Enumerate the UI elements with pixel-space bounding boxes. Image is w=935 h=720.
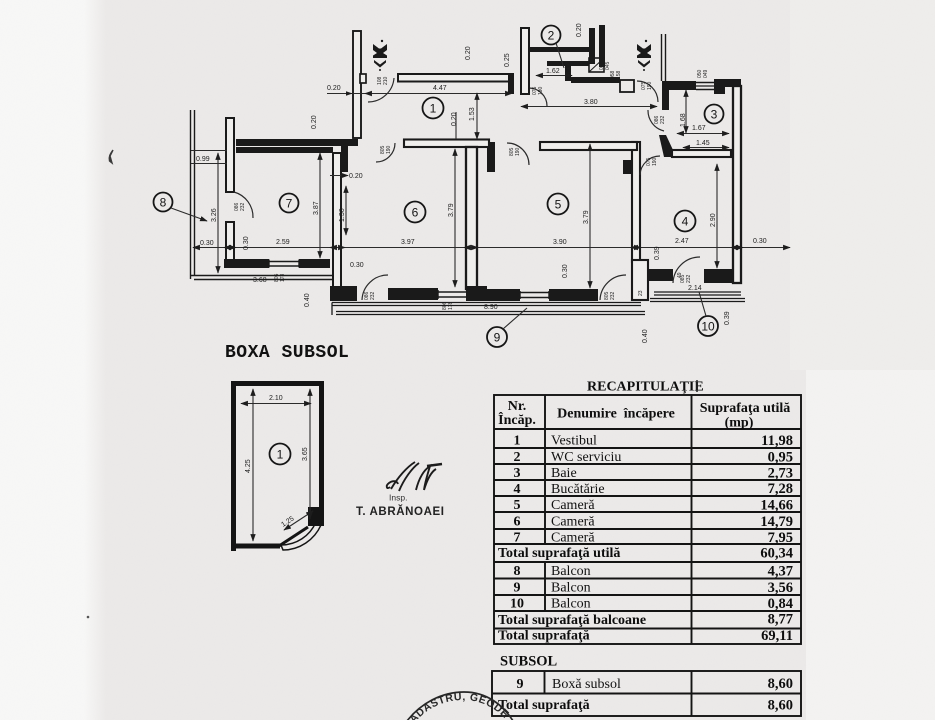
svg-text:7: 7 [514, 531, 521, 546]
svg-text:0.20: 0.20 [465, 46, 472, 60]
svg-text:190: 190 [386, 145, 392, 154]
svg-text:T. ABRĂNOAEI: T. ABRĂNOAEI [356, 505, 445, 518]
svg-text:Denumire încăpere: Denumire încăpere [557, 407, 675, 422]
svg-text:4,37: 4,37 [768, 564, 793, 580]
svg-text:Nr.: Nr. [508, 399, 527, 414]
svg-text:Baie: Baie [551, 466, 577, 481]
svg-text:232: 232 [240, 202, 246, 211]
svg-text:6: 6 [514, 515, 521, 530]
svg-text:0.99: 0.99 [196, 156, 210, 163]
svg-text:1.69: 1.69 [566, 61, 573, 75]
svg-text:0.39: 0.39 [654, 246, 661, 260]
svg-text:3.90: 3.90 [553, 239, 567, 246]
svg-text:190: 190 [538, 86, 544, 95]
svg-text:9: 9 [517, 677, 524, 692]
svg-text:2.90: 2.90 [710, 213, 717, 227]
svg-text:7: 7 [286, 197, 293, 211]
svg-text:5: 5 [514, 498, 521, 513]
svg-text:0.20: 0.20 [576, 23, 583, 37]
svg-text:0.20: 0.20 [327, 85, 341, 92]
svg-text:232: 232 [610, 291, 616, 300]
svg-text:7,28: 7,28 [768, 481, 793, 497]
svg-text:190: 190 [647, 81, 653, 90]
svg-text:2: 2 [514, 450, 521, 465]
svg-text:Insp.: Insp. [389, 493, 407, 503]
svg-text:232: 232 [370, 291, 376, 300]
svg-text:Bucătărie: Bucătărie [551, 482, 605, 497]
svg-text:2: 2 [548, 29, 555, 43]
svg-text:WC serviciu: WC serviciu [551, 450, 621, 465]
svg-text:5: 5 [555, 198, 562, 212]
svg-text:3,56: 3,56 [768, 580, 793, 596]
svg-text:4: 4 [682, 215, 689, 229]
svg-text:0.25: 0.25 [504, 53, 511, 67]
svg-text:0.30: 0.30 [753, 238, 767, 245]
svg-text:8,60: 8,60 [768, 676, 793, 692]
svg-text:60,34: 60,34 [760, 546, 793, 562]
svg-text:1.36: 1.36 [339, 208, 346, 222]
svg-text:10: 10 [701, 320, 715, 334]
svg-text:11,98: 11,98 [761, 433, 793, 449]
svg-text:3.65: 3.65 [302, 447, 309, 461]
svg-text:Balcon: Balcon [551, 564, 591, 579]
svg-text:4: 4 [514, 482, 521, 497]
svg-text:0,84: 0,84 [768, 596, 793, 612]
svg-text:3: 3 [514, 466, 521, 481]
svg-text:178: 178 [448, 301, 454, 310]
svg-text:Total suprafaţă: Total suprafaţă [498, 698, 590, 713]
svg-text:0.30: 0.30 [562, 264, 569, 278]
svg-text:8,60: 8,60 [768, 698, 793, 714]
svg-text:210: 210 [383, 76, 389, 85]
svg-text:2.47: 2.47 [675, 238, 689, 245]
svg-text:(mp): (mp) [725, 416, 754, 431]
svg-text:1.68: 1.68 [680, 113, 687, 127]
svg-text:0.40: 0.40 [304, 293, 311, 307]
svg-text:69,11: 69,11 [761, 628, 793, 644]
svg-text:0.39: 0.39 [724, 311, 731, 325]
svg-text:Cameră: Cameră [551, 498, 595, 513]
svg-text:2.14: 2.14 [688, 285, 702, 292]
svg-text:3.87: 3.87 [313, 201, 320, 215]
svg-text:0.40: 0.40 [642, 329, 649, 343]
svg-text:Total suprafaţă balcoane: Total suprafaţă balcoane [498, 613, 646, 628]
svg-text:8,77: 8,77 [768, 612, 793, 628]
svg-text:4.47: 4.47 [433, 85, 447, 92]
svg-text:1.45: 1.45 [696, 140, 710, 147]
svg-text:Cameră: Cameră [551, 531, 595, 546]
svg-text:Balcon: Balcon [551, 581, 591, 596]
svg-text:190: 190 [515, 147, 521, 156]
svg-text:RECAPITULAŢIE: RECAPITULAŢIE [587, 380, 704, 395]
svg-text:Suprafaţa utilă: Suprafaţa utilă [700, 401, 791, 416]
svg-text:Total suprafaţă utilă: Total suprafaţă utilă [498, 546, 620, 561]
svg-text:1.67: 1.67 [692, 125, 706, 132]
svg-text:23: 23 [638, 290, 644, 296]
svg-text:3.79: 3.79 [583, 210, 590, 224]
svg-text:6: 6 [412, 206, 419, 220]
svg-text:1.62: 1.62 [546, 68, 560, 75]
svg-text:178: 178 [280, 273, 286, 282]
svg-text:Total suprafaţă: Total suprafaţă [498, 629, 590, 644]
svg-text:Vestibul: Vestibul [551, 434, 597, 449]
svg-text:BOXA SUBSOL: BOXA SUBSOL [225, 343, 349, 363]
svg-text:1: 1 [430, 102, 437, 116]
svg-text:Balcon: Balcon [551, 597, 591, 612]
svg-text:1.53: 1.53 [469, 107, 476, 121]
svg-text:14,79: 14,79 [760, 514, 793, 530]
svg-text:Încăp.: Încăp. [498, 411, 536, 428]
svg-text:0.20: 0.20 [451, 112, 458, 126]
svg-text:2.59: 2.59 [276, 239, 290, 246]
svg-text:1: 1 [514, 434, 521, 449]
svg-text:8: 8 [514, 564, 521, 579]
svg-text:8.90: 8.90 [484, 304, 498, 311]
svg-text:49: 49 [677, 272, 683, 278]
svg-text:49: 49 [343, 159, 349, 165]
svg-text:3.97: 3.97 [401, 239, 415, 246]
svg-text:3.68: 3.68 [253, 277, 267, 284]
svg-text:232: 232 [660, 115, 666, 124]
svg-text:0.30: 0.30 [200, 240, 214, 247]
svg-text:14,66: 14,66 [760, 498, 793, 514]
svg-text:0.30: 0.30 [243, 236, 250, 250]
svg-text:7,95: 7,95 [768, 530, 793, 546]
svg-text:158: 158 [616, 70, 622, 79]
svg-text:232: 232 [686, 274, 692, 283]
svg-text:190: 190 [652, 157, 658, 166]
svg-text:9: 9 [514, 581, 521, 596]
svg-text:3.79: 3.79 [448, 203, 455, 217]
svg-text:0.20: 0.20 [349, 173, 363, 180]
svg-text:3: 3 [711, 108, 718, 122]
svg-text:SUBSOL: SUBSOL [500, 654, 558, 670]
svg-text:2.10: 2.10 [269, 395, 283, 402]
svg-text:045: 045 [605, 61, 611, 70]
svg-text:1: 1 [277, 448, 284, 462]
svg-text:0.30: 0.30 [350, 262, 364, 269]
svg-text:0.20: 0.20 [311, 115, 318, 129]
svg-text:049: 049 [703, 69, 709, 78]
svg-text:10: 10 [510, 597, 524, 612]
svg-text:Cameră: Cameră [551, 515, 595, 530]
svg-text:0,95: 0,95 [768, 450, 793, 466]
svg-text:8: 8 [160, 196, 167, 210]
svg-text:3.26: 3.26 [211, 208, 218, 222]
svg-text:2,73: 2,73 [768, 466, 793, 482]
svg-text:Boxă subsol: Boxă subsol [552, 677, 621, 692]
svg-text:4.25: 4.25 [245, 459, 252, 473]
svg-text:3.80: 3.80 [584, 99, 598, 106]
svg-text:9: 9 [494, 331, 501, 345]
